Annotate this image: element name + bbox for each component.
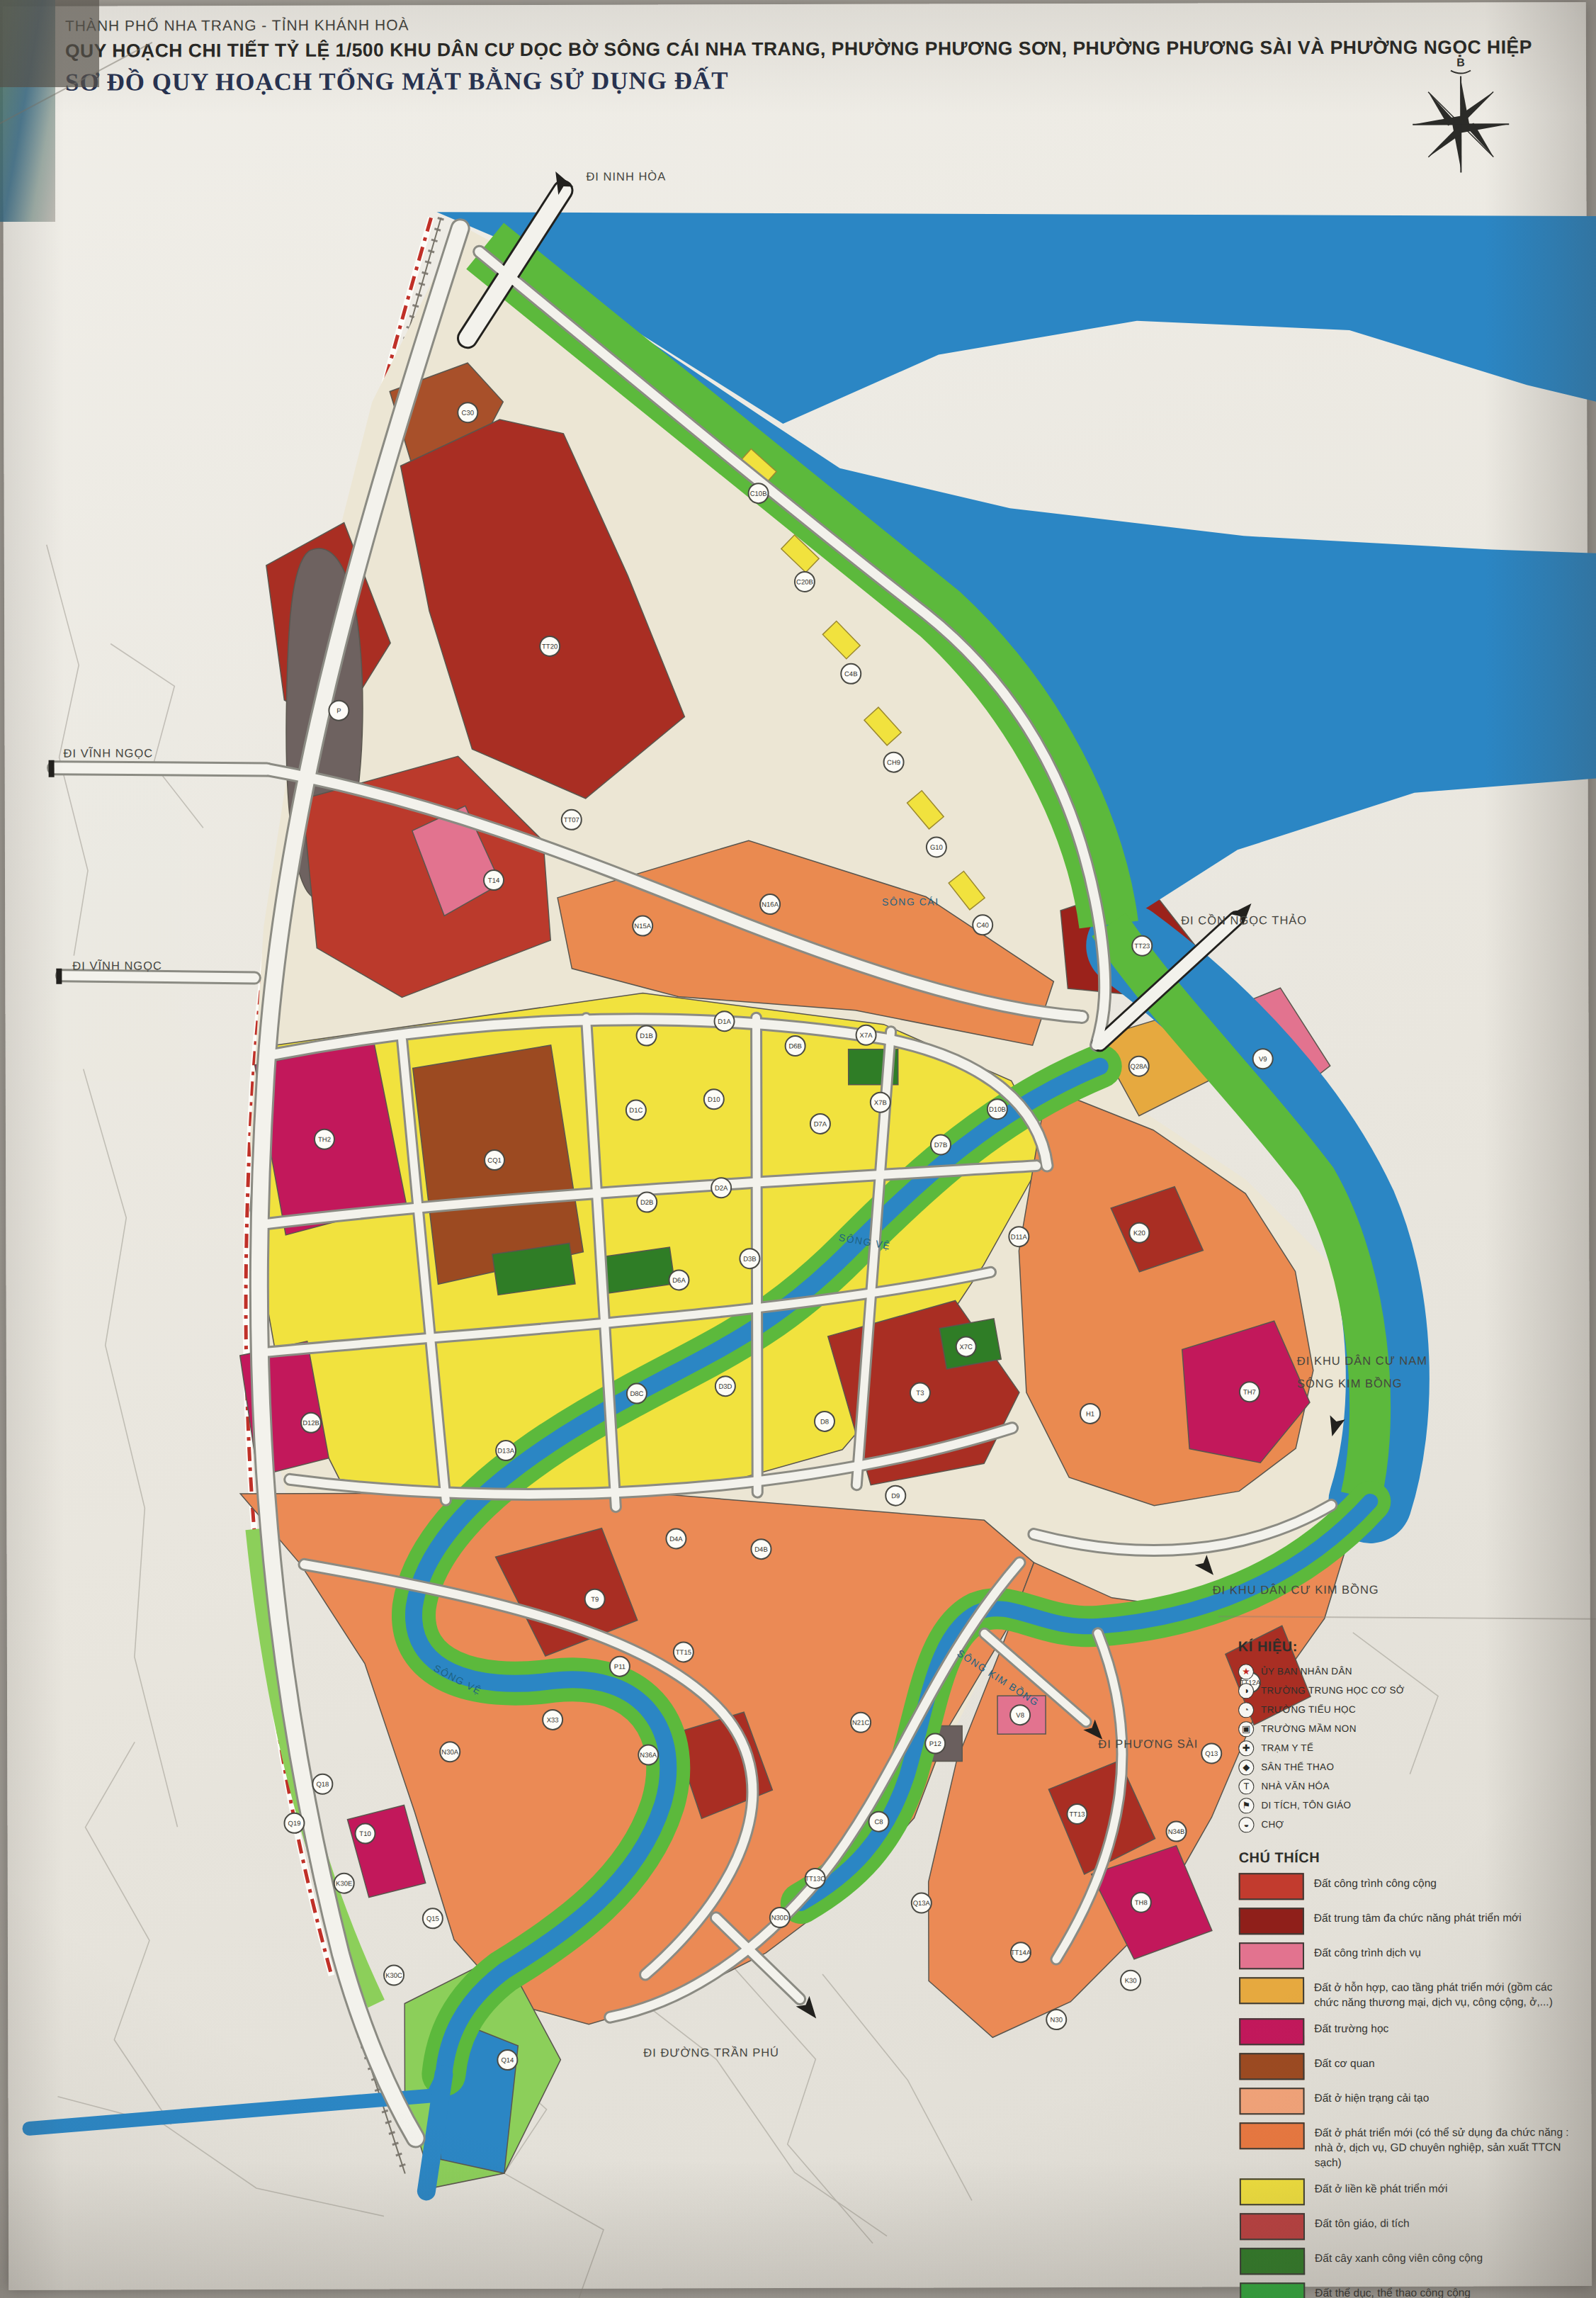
parcel-marker: Q14 — [497, 2050, 517, 2070]
parcel-marker: P11 — [610, 1657, 630, 1677]
svg-text:D3B: D3B — [743, 1255, 757, 1263]
svg-text:D1C: D1C — [629, 1106, 643, 1114]
legend-color-swatch — [1239, 2053, 1304, 2080]
svg-text:TH8: TH8 — [1135, 1898, 1148, 1906]
parcel-marker: N15A — [633, 916, 652, 936]
svg-text:TT13: TT13 — [1069, 1810, 1085, 1818]
svg-text:D12B: D12B — [302, 1419, 319, 1426]
parcel-marker: D7A — [810, 1114, 830, 1134]
parcel-marker: D4B — [751, 1539, 771, 1559]
legend-symbol-label: TRẠM Y TẾ — [1261, 1742, 1313, 1753]
parcel-marker: D2A — [711, 1178, 731, 1198]
svg-text:N30: N30 — [1050, 2016, 1062, 2024]
svg-text:N34B: N34B — [1168, 1827, 1185, 1835]
legend-landuse-item: Đất thể dục, thể thao công cộng — [1240, 2282, 1596, 2298]
parcel-marker: Q13 — [1201, 1743, 1221, 1763]
svg-text:D6B: D6B — [788, 1042, 802, 1049]
road-label: ĐI KHU DÂN CƯ NAM — [1297, 1354, 1427, 1367]
parcel-marker: C40 — [973, 915, 992, 935]
svg-text:T14: T14 — [488, 877, 499, 884]
legend-symbol-label: ỦY BAN NHÂN DÂN — [1261, 1666, 1352, 1677]
legend-symbol-label: TRƯỜNG TRUNG HỌC CƠ SỞ — [1261, 1685, 1405, 1696]
parcel-marker: D12B — [301, 1413, 321, 1433]
svg-text:Q18: Q18 — [316, 1780, 329, 1788]
legend-landuse-list: Đất công trình công cộngĐất trung tâm đa… — [1239, 1872, 1596, 2298]
parcel-marker: TT14A — [1011, 1942, 1031, 1962]
svg-text:N16A: N16A — [762, 901, 779, 908]
svg-text:CH9: CH9 — [887, 758, 900, 766]
parcel-marker: C20B — [795, 572, 815, 592]
legend-color-swatch — [1239, 2088, 1304, 2114]
legend-symbol-item: ◒CHỢ — [1238, 1814, 1596, 1834]
svg-text:K30C: K30C — [385, 1971, 402, 1979]
svg-text:D6A: D6A — [672, 1276, 686, 1284]
parcel-marker: K20 — [1129, 1223, 1149, 1243]
parcel-marker: CH9 — [884, 753, 904, 772]
legend-symbol-icon: ▣ — [1238, 1721, 1254, 1737]
parcel-marker: TT13 — [1067, 1804, 1087, 1824]
svg-text:K30E: K30E — [336, 1879, 352, 1887]
svg-text:N15A: N15A — [634, 922, 651, 930]
svg-text:D4B: D4B — [754, 1545, 768, 1553]
parcel-marker: D6B — [786, 1036, 805, 1056]
parcel-marker: K30E — [334, 1874, 354, 1893]
parcel-marker: D11A — [1009, 1227, 1029, 1246]
legend-symbol-icon: ⚑ — [1238, 1798, 1254, 1813]
legend-symbol-label: SÂN THỂ THAO — [1261, 1762, 1334, 1772]
svg-text:D1B: D1B — [640, 1032, 653, 1040]
parcel-marker: D10B — [987, 1099, 1007, 1119]
legend-symbol-label: DI TÍCH, TÔN GIÁO — [1261, 1800, 1351, 1810]
svg-text:K20: K20 — [1133, 1229, 1145, 1237]
svg-text:TT07: TT07 — [564, 816, 579, 823]
legend-symbol-item: ▣TRƯỜNG MẦM NON — [1238, 1718, 1596, 1738]
legend-landuse-item: Đất công trình công cộng — [1239, 1872, 1596, 1900]
parcel-marker: TH8 — [1131, 1893, 1151, 1913]
legend-color-swatch — [1239, 1942, 1304, 1969]
legend-landuse-item: Đất tôn giáo, di tích — [1240, 2212, 1596, 2240]
parcel-marker: D7B — [931, 1134, 951, 1154]
legend-symbol-item: TNHÀ VĂN HÓA — [1238, 1776, 1596, 1796]
legend-landuse-item: Đất cơ quan — [1239, 2052, 1596, 2080]
parcel-marker: N34B — [1166, 1822, 1186, 1842]
parcel-marker: Q18 — [312, 1774, 332, 1794]
legend-symbols-title: KÍ HIỆU: — [1238, 1638, 1596, 1655]
svg-text:TH7: TH7 — [1243, 1388, 1256, 1396]
legend-landuse-label: Đất ở liền kề phát triển mới — [1315, 2178, 1448, 2196]
legend-symbol-icon: ◆ — [1238, 1759, 1254, 1775]
parcel-marker: TT07 — [562, 810, 582, 830]
svg-text:N30D: N30D — [771, 1914, 788, 1922]
legend-landuse-label: Đất ở hiện trạng cải tạo — [1314, 2088, 1429, 2106]
legend-symbol-item: ◑TRƯỜNG TRUNG HỌC CƠ SỞ — [1238, 1680, 1596, 1700]
parcel-marker: K30 — [1121, 1971, 1141, 1990]
svg-text:CQ1: CQ1 — [487, 1156, 502, 1164]
legend-symbol-item: ◔TRƯỜNG TIỂU HỌC — [1238, 1699, 1596, 1719]
legend-symbol-label: TRƯỜNG MẦM NON — [1261, 1723, 1357, 1734]
svg-text:N36A: N36A — [640, 1751, 657, 1759]
legend-color-swatch — [1240, 2282, 1305, 2298]
parcel-marker: TT15 — [674, 1642, 694, 1662]
parcel-marker: C8 — [868, 1812, 888, 1832]
legend-landuse-item: Đất ở hỗn hợp, cao tầng phát triển mới (… — [1239, 1976, 1596, 2010]
svg-text:Q13A: Q13A — [913, 1899, 931, 1907]
svg-text:D3D: D3D — [718, 1382, 732, 1390]
svg-text:T3: T3 — [916, 1389, 924, 1397]
svg-text:X7C: X7C — [959, 1343, 973, 1351]
legend-landuse-label: Đất cây xanh công viên công cộng — [1315, 2247, 1483, 2266]
parcel-marker: D6A — [669, 1270, 689, 1290]
svg-text:Q19: Q19 — [288, 1819, 300, 1827]
road-label: ĐI VĨNH NGỌC — [64, 745, 154, 759]
legend-color-swatch — [1240, 2122, 1305, 2149]
svg-text:D2B: D2B — [640, 1198, 654, 1206]
legend-landuse-label: Đất thể dục, thể thao công cộng — [1315, 2282, 1471, 2298]
parcel-marker: T9 — [585, 1589, 605, 1609]
legend-symbol-label: CHỢ — [1261, 1819, 1284, 1830]
road-label: ĐI KHU DÂN CƯ KIM BỒNG — [1213, 1583, 1379, 1596]
parcel-marker: T14 — [484, 870, 504, 890]
legend-symbol-icon: T — [1238, 1779, 1254, 1794]
svg-text:P12: P12 — [929, 1740, 941, 1747]
legend-landuse-label: Đất ở hỗn hợp, cao tầng phát triển mới (… — [1314, 1976, 1576, 2010]
parcel-marker: D9 — [885, 1486, 905, 1506]
parcel-marker: TH7 — [1240, 1382, 1260, 1402]
legend-color-swatch — [1239, 1908, 1304, 1934]
svg-text:C8: C8 — [874, 1818, 883, 1825]
legend-symbol-icon: ◑ — [1238, 1683, 1254, 1699]
svg-text:G10: G10 — [930, 843, 943, 851]
svg-text:TT14A: TT14A — [1011, 1949, 1031, 1956]
parcel-marker: Q19 — [284, 1813, 304, 1833]
svg-text:Q13: Q13 — [1205, 1750, 1218, 1757]
parcel-marker: D8C — [627, 1384, 647, 1404]
svg-text:C20B: C20B — [796, 578, 813, 585]
svg-text:X7B: X7B — [874, 1098, 887, 1106]
svg-text:K30: K30 — [1125, 1976, 1137, 1984]
legend-symbol-item: ⚑DI TÍCH, TÔN GIÁO — [1238, 1795, 1596, 1815]
svg-text:TT13C: TT13C — [805, 1874, 825, 1882]
svg-text:N21C: N21C — [852, 1718, 869, 1726]
svg-text:P: P — [336, 706, 341, 714]
legend-symbol-item: ✚TRẠM Y TẾ — [1238, 1737, 1596, 1757]
legend-landuse-label: Đất công trình dịch vụ — [1314, 1942, 1421, 1961]
parcel-marker: D8 — [815, 1412, 834, 1431]
legend-landuse-item: Đất trung tâm đa chức năng phát triển mớ… — [1239, 1907, 1596, 1934]
svg-text:TH2: TH2 — [318, 1135, 331, 1143]
legend-landuse-label: Đất công trình công cộng — [1314, 1873, 1437, 1891]
map-region-title: THÀNH PHỐ NHA TRANG - TỈNH KHÁNH HOÀ — [65, 16, 409, 34]
svg-text:C40: C40 — [976, 921, 988, 929]
parcel-marker: K30C — [384, 1965, 404, 1985]
parcel-marker: D13A — [496, 1441, 516, 1460]
parcel-marker: P — [329, 701, 349, 721]
parcel-marker: TT20 — [540, 636, 560, 656]
parcel-marker: N36A — [638, 1745, 658, 1765]
river-label: SÔNG CÁI — [882, 896, 939, 907]
parcel-marker: X7B — [871, 1093, 890, 1113]
parcel-marker: T10 — [356, 1824, 375, 1844]
svg-text:C10B: C10B — [750, 490, 767, 497]
parcel-marker: D3B — [740, 1249, 759, 1268]
svg-text:N30A: N30A — [441, 1748, 458, 1756]
svg-text:D10B: D10B — [989, 1105, 1006, 1113]
legend-landuse-item: Đất ở hiện trạng cải tạo — [1239, 2087, 1596, 2114]
svg-text:D4A: D4A — [669, 1535, 683, 1543]
parcel-marker: N30D — [770, 1908, 790, 1927]
parcel-marker: X7C — [956, 1336, 976, 1356]
svg-text:T9: T9 — [591, 1595, 599, 1603]
svg-text:D11A: D11A — [1011, 1233, 1028, 1241]
svg-text:D2A: D2A — [715, 1184, 728, 1192]
legend-landuse-item: Đất trường học — [1239, 2017, 1596, 2045]
svg-text:D1A: D1A — [718, 1018, 731, 1025]
parcel-marker: C30 — [458, 402, 477, 422]
legend-landuse-label: Đất cơ quan — [1314, 2053, 1374, 2071]
svg-text:X7A: X7A — [860, 1031, 873, 1039]
parcel-marker: V8 — [1010, 1705, 1030, 1725]
road-label: ĐI NINH HÒA — [586, 169, 666, 182]
svg-text:D8C: D8C — [630, 1390, 643, 1397]
parcel-marker: V9 — [1253, 1049, 1273, 1069]
legend-landuse-label: Đất ở phát triển mới (có thể sử dụng đa … — [1315, 2122, 1577, 2170]
parcel-marker: H1 — [1080, 1404, 1100, 1424]
legend-landuse-title: CHÚ THÍCH — [1239, 1849, 1596, 1866]
road-label: ĐI ĐƯỜNG TRẦN PHÚ — [643, 2046, 779, 2059]
legend-symbol-icon: ★ — [1238, 1664, 1254, 1679]
svg-text:Q28A: Q28A — [1131, 1062, 1148, 1070]
map-sheet-title: SƠ ĐỒ QUY HOẠCH TỔNG MẶT BẰNG SỬ DỤNG ĐẤ… — [65, 67, 729, 96]
svg-text:Q15: Q15 — [426, 1915, 439, 1922]
compass-rose: B — [1413, 56, 1509, 172]
legend-landuse-label: Đất trường học — [1314, 2018, 1388, 2037]
legend-landuse-item: Đất công trình dịch vụ — [1239, 1942, 1596, 1969]
parcel-marker: Q15 — [423, 1908, 443, 1928]
parcel-marker: TT23 — [1132, 936, 1152, 956]
svg-text:V8: V8 — [1016, 1711, 1024, 1719]
legend-color-swatch — [1240, 2213, 1305, 2240]
svg-text:P11: P11 — [614, 1662, 626, 1670]
parcel-marker: N16A — [760, 894, 780, 914]
legend-color-swatch — [1239, 1873, 1304, 1900]
legend-symbol-item: ★ỦY BAN NHÂN DÂN — [1238, 1661, 1596, 1681]
svg-text:TT23: TT23 — [1134, 942, 1150, 950]
legend-symbol-item: ◆SÂN THỂ THAO — [1238, 1757, 1596, 1776]
parcel-marker: N30A — [440, 1742, 460, 1762]
svg-text:D7B: D7B — [934, 1141, 948, 1149]
svg-text:Q14: Q14 — [501, 2056, 514, 2064]
legend-symbol-icon: ◒ — [1238, 1817, 1254, 1832]
parcel-marker: C10B — [749, 483, 769, 503]
svg-text:D13A: D13A — [497, 1447, 514, 1455]
legend-symbol-label: TRƯỜNG TIỂU HỌC — [1261, 1704, 1356, 1715]
parcel-marker: P12 — [925, 1733, 945, 1753]
legend-landuse-item: Đất ở phát triển mới (có thể sử dụng đa … — [1240, 2122, 1596, 2170]
parcel-marker: X33 — [543, 1710, 562, 1730]
legend-symbols-list: ★ỦY BAN NHÂN DÂN◑TRƯỜNG TRUNG HỌC CƠ SỞ◔… — [1238, 1661, 1596, 1834]
parcel-marker: Q28A — [1129, 1057, 1149, 1076]
legend-symbol-icon: ◔ — [1238, 1702, 1254, 1718]
parcel-marker: TH2 — [315, 1130, 334, 1149]
parcel-marker: X7A — [856, 1025, 876, 1045]
map-plan-title: QUY HOẠCH CHI TIẾT TỶ LỆ 1/500 KHU DÂN C… — [65, 36, 1532, 62]
parcel-marker: D3D — [715, 1376, 735, 1396]
parcel-marker: CQ1 — [485, 1150, 504, 1170]
svg-text:V9: V9 — [1259, 1055, 1267, 1063]
parcel-marker: C4B — [841, 664, 861, 684]
map-sheet: B C30TT20PTT07T14C10BC20BC4BCH9G10C40N15… — [3, 2, 1592, 2290]
legend-color-swatch — [1239, 1977, 1304, 2004]
parcel-marker: Q13A — [912, 1893, 932, 1913]
legend-color-swatch — [1239, 2018, 1304, 2045]
svg-text:X33: X33 — [547, 1716, 559, 1723]
parcel-marker: T3 — [910, 1383, 930, 1403]
parcel-marker: D1C — [626, 1100, 646, 1120]
svg-text:D8: D8 — [820, 1417, 829, 1425]
road-label: ĐI PHƯƠNG SÀI — [1098, 1737, 1198, 1750]
legend-color-swatch — [1240, 2178, 1305, 2205]
parcel-marker: D2B — [637, 1193, 657, 1212]
district-blocks-central — [239, 992, 1048, 1501]
svg-text:C4B: C4B — [844, 670, 858, 677]
svg-text:TT15: TT15 — [676, 1648, 691, 1656]
legend-landuse-item: Đất cây xanh công viên công cộng — [1240, 2247, 1596, 2275]
svg-text:C30: C30 — [462, 409, 474, 417]
legend-landuse-label: Đất tôn giáo, di tích — [1315, 2212, 1410, 2231]
parcel-marker: N30 — [1046, 2010, 1066, 2029]
parcel-marker: D4A — [666, 1528, 686, 1548]
parcel-marker: TT13C — [805, 1869, 825, 1888]
parcel-marker: D1B — [637, 1026, 657, 1046]
legend: KÍ HIỆU: ★ỦY BAN NHÂN DÂN◑TRƯỜNG TRUNG H… — [1238, 1638, 1596, 2298]
legend-landuse-item: Đất ở liền kề phát triển mới — [1240, 2178, 1596, 2205]
parcel-marker: N21C — [851, 1713, 871, 1733]
svg-text:D9: D9 — [891, 1492, 900, 1499]
road-label: ĐI CỒN NGỌC THẢO — [1181, 913, 1307, 926]
legend-color-swatch — [1240, 2248, 1305, 2275]
parcel-marker: D1A — [715, 1011, 735, 1031]
road-label: SÔNG KIM BỒNG — [1297, 1377, 1403, 1390]
parcel-marker: D10 — [704, 1089, 724, 1109]
svg-text:TT20: TT20 — [542, 642, 558, 650]
svg-text:D10: D10 — [708, 1096, 720, 1103]
legend-symbol-icon: ✚ — [1238, 1740, 1254, 1756]
legend-landuse-label: Đất trung tâm đa chức năng phát triển mớ… — [1314, 1907, 1522, 1926]
road-label: ĐI VĨNH NGỌC — [72, 958, 162, 971]
parcel-marker: G10 — [927, 837, 946, 857]
svg-text:D7A: D7A — [814, 1120, 827, 1127]
legend-symbol-label: NHÀ VĂN HÓA — [1261, 1781, 1329, 1791]
svg-text:H1: H1 — [1086, 1409, 1094, 1417]
svg-text:T10: T10 — [359, 1830, 370, 1837]
